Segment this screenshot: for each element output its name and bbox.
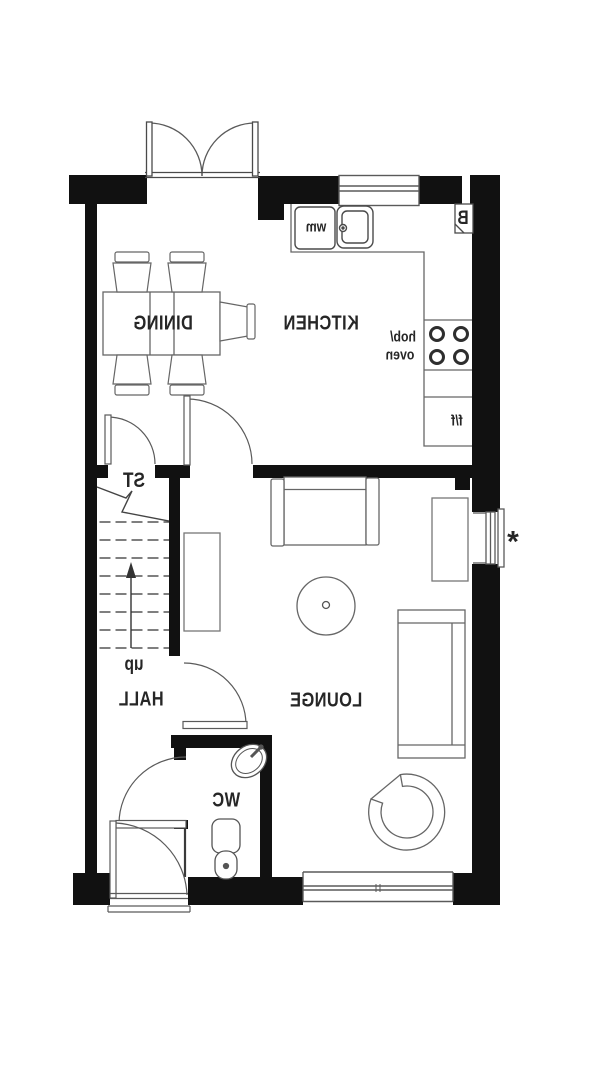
hob-label: hob/ <box>390 329 416 346</box>
kitchen-door <box>184 396 252 465</box>
kitchen-window <box>339 176 419 206</box>
lounge-side-window <box>473 509 504 567</box>
boiler-label: B <box>457 208 468 230</box>
room-label-store: ST <box>123 469 145 493</box>
room-label-kitchen: KITCHEN <box>283 313 359 336</box>
wc-door <box>116 757 186 828</box>
stairs <box>97 487 169 648</box>
front-door <box>108 821 190 912</box>
tv-unit <box>432 498 468 581</box>
sofa-2 <box>398 610 465 758</box>
window-note-star: * <box>507 525 519 559</box>
hob-burners <box>431 328 468 364</box>
fridge-freezer-label: f/f <box>451 413 463 430</box>
lounge-front-window <box>303 872 453 902</box>
toilet <box>212 819 240 879</box>
stairs-up-label: up <box>124 654 143 676</box>
oven-label: oven <box>386 347 415 364</box>
store-door <box>105 415 155 464</box>
french-doors <box>145 122 260 178</box>
room-label-lounge: LOUNGE <box>290 690 363 713</box>
kitchen-sink <box>337 206 373 248</box>
room-label-dining: DINING <box>133 313 193 336</box>
room-label-wc: WC <box>212 790 240 813</box>
sofa <box>271 477 379 546</box>
lounge-door <box>183 663 247 729</box>
armchair <box>369 774 445 850</box>
floor-plan: KITCHEN DINING LOUNGE HALL WC ST up wm B… <box>0 0 607 1080</box>
basin <box>225 737 273 784</box>
coffee-table <box>297 577 355 635</box>
washing-machine-label: wm <box>306 219 327 236</box>
room-label-hall: HALL <box>118 689 163 712</box>
sideboard <box>184 533 220 631</box>
